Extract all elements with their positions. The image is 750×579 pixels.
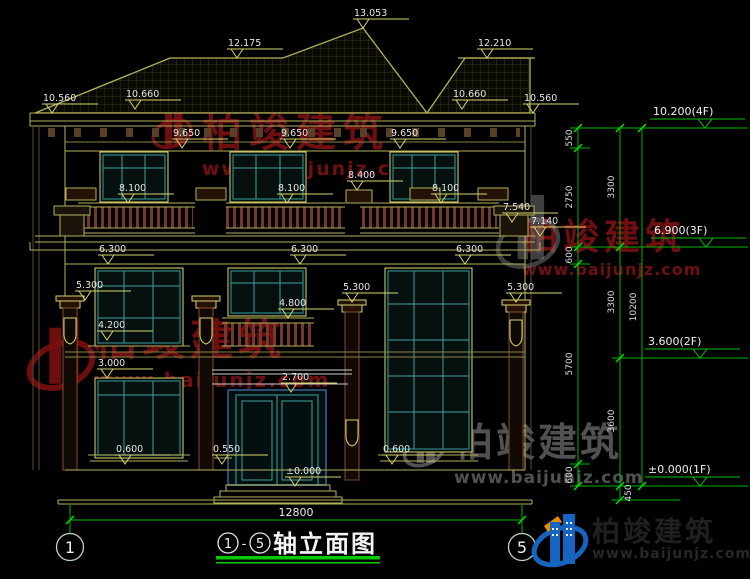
elevation-marker: 12.210 [477,38,533,58]
elevation-value: 8.400 [348,170,375,181]
elevation-marker: 10.560 [523,93,579,113]
elevation-value: 3.000 [98,358,125,369]
vertical-dim: 550 [565,129,575,146]
grid-bubble-right-number: 5 [517,538,527,557]
title-text: 轴立面图 [273,530,377,558]
elevation-marker: 10.660 [125,89,181,109]
vertical-dim: 600 [565,246,575,263]
elevation-marker: 5.300 [506,282,562,302]
elevation-marker: 4.800 [278,298,334,318]
elevation-value: 0.550 [213,444,240,455]
elevation-value: 0.600 [383,444,410,455]
company-logo-url: www.baijunjz.com [592,546,750,562]
elevation-value: 9.650 [391,128,418,139]
elevation-value: 5.300 [343,282,370,293]
elevation-marker: 6.300 [455,244,511,264]
elevation-marker: 5.300 [342,282,398,302]
elevation-value: 7.140 [531,216,558,227]
floor-level-marker: 3.600(2F) [645,335,740,358]
elevation-value: 6.300 [456,244,483,255]
floor-level-marker: 10.200(4F) [650,105,745,128]
elevation-marker: 6.300 [98,244,154,264]
elevation-value: 5.300 [76,280,103,291]
elevation-marker: 8.400 [347,170,403,190]
elevation-marker: ±0.000 [285,466,341,486]
company-logo-brand: 柏竣建筑 [592,510,716,550]
elevation-value: 8.100 [432,183,459,194]
floor-level-marker: 6.900(3F) [651,224,746,247]
elevation-marker: 10.560 [42,93,98,113]
elevation-marker: 9.650 [390,128,446,148]
elevation-value: 12.175 [228,38,261,49]
elevation-marker: 3.000 [97,358,153,378]
elevation-value: 10.560 [43,93,76,104]
elevation-value: 4.200 [98,320,125,331]
elevation-drawing-canvas: 柏竣建筑 www.baijunjz.com 柏竣建筑 www.baijunjz.… [0,0,750,579]
floor-level-value: 6.900(3F) [654,224,707,237]
vertical-dim: 2750 [565,185,575,208]
elevation-value: ±0.000 [286,466,321,477]
company-logo: 柏竣建筑 www.baijunjz.com [528,502,750,579]
elevation-value: 2.700 [282,372,309,383]
vertical-dim: 450 [624,484,634,501]
elevation-marker: 9.650 [280,128,336,148]
elevation-value: 5.300 [507,282,534,293]
vertical-dim: 3300 [607,290,617,313]
elevation-marker: 9.650 [172,128,228,148]
elevation-marker: 8.100 [431,183,487,203]
elevation-value: 8.100 [278,183,305,194]
floor-level-marker: ±0.000(1F) [645,463,740,486]
elevation-marker: 0.600 [115,444,171,464]
elevation-value: 6.300 [291,244,318,255]
vertical-dim: 600 [565,466,575,483]
elevation-value: 4.800 [279,298,306,309]
company-logo-icon [530,504,590,576]
elevation-marker: 0.600 [382,444,438,464]
elevation-value: 10.560 [524,93,557,104]
vertical-dim: 3600 [607,409,617,432]
vertical-dim: 10200 [629,292,639,321]
floor-level-value: ±0.000(1F) [648,463,711,476]
floor-level-value: 10.200(4F) [653,105,713,118]
elevation-marker: 4.200 [97,320,153,340]
title-axis-from: 1 [224,537,232,552]
grid-bubble-left-number: 1 [65,538,75,557]
elevation-value: 8.100 [119,183,146,194]
elevation-value: 0.600 [116,444,143,455]
floor-level-value: 3.600(2F) [648,335,701,348]
elevation-marker: 7.140 [530,216,586,236]
elevation-value: 10.660 [453,89,486,100]
elevation-marker: 2.700 [281,372,337,392]
elevation-value: 9.650 [173,128,200,139]
elevation-value: 7.540 [503,202,530,213]
vertical-dim: 3300 [607,175,617,198]
elevation-marker: 6.300 [290,244,346,264]
elevation-marker: 8.100 [118,183,174,203]
overall-width-dim: 12800 [279,506,314,519]
elevation-value: 12.210 [478,38,511,49]
vertical-dim: 5700 [565,352,575,375]
elevation-marker: 8.100 [277,183,333,203]
elevation-value: 6.300 [99,244,126,255]
dimension-labels: 13.053 12.175 12.210 10.560 10.660 10.66… [0,0,750,579]
elevation-value: 13.053 [354,8,387,19]
drawing-title: 1 - 5 轴立面图 [218,530,377,558]
elevation-marker: 12.175 [227,38,283,58]
elevation-marker: 5.300 [75,280,131,300]
title-separator: - [242,537,247,552]
elevation-value: 10.660 [126,89,159,100]
elevation-marker: 0.550 [212,444,268,464]
elevation-marker: 10.660 [452,89,508,109]
title-axis-to: 5 [256,537,264,552]
elevation-value: 9.650 [281,128,308,139]
elevation-marker: 13.053 [353,8,409,28]
